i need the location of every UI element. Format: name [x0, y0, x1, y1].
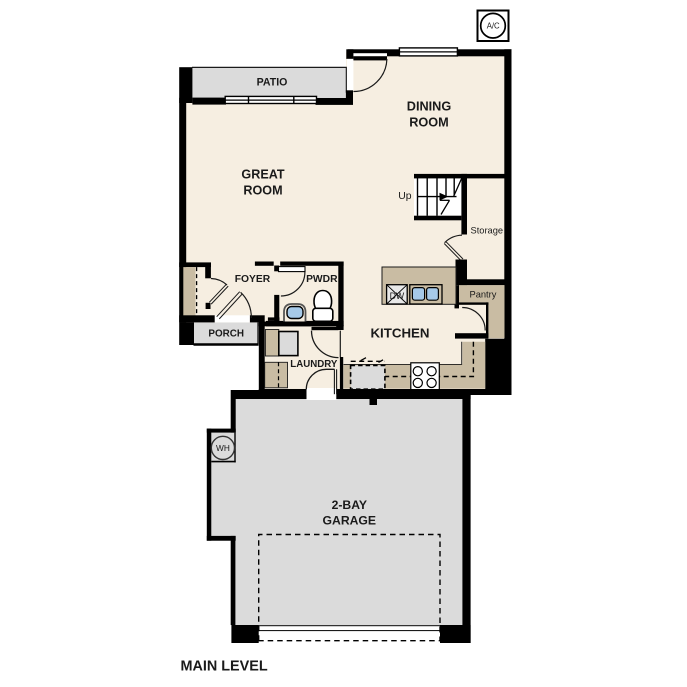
svg-text:ROOM: ROOM	[409, 116, 448, 130]
svg-text:Pantry: Pantry	[470, 290, 497, 300]
svg-text:Up: Up	[398, 191, 412, 202]
svg-text:PWDR: PWDR	[306, 274, 338, 285]
svg-text:ROOM: ROOM	[243, 184, 282, 198]
svg-text:GREAT: GREAT	[241, 167, 284, 181]
svg-text:GARAGE: GARAGE	[323, 514, 377, 528]
svg-text:LAUNDRY: LAUNDRY	[290, 359, 338, 370]
svg-text:DW: DW	[390, 291, 405, 301]
svg-text:PORCH: PORCH	[208, 328, 244, 339]
svg-text:2-BAY: 2-BAY	[332, 498, 367, 512]
svg-text:A/C: A/C	[487, 21, 500, 30]
svg-text:WH: WH	[216, 443, 230, 453]
svg-text:MAIN LEVEL: MAIN LEVEL	[181, 659, 268, 675]
svg-text:DINING: DINING	[407, 100, 452, 114]
svg-text:FOYER: FOYER	[235, 274, 271, 285]
svg-text:PATIO: PATIO	[257, 76, 288, 88]
svg-text:Storage: Storage	[471, 226, 504, 236]
svg-text:KITCHEN: KITCHEN	[370, 326, 429, 341]
